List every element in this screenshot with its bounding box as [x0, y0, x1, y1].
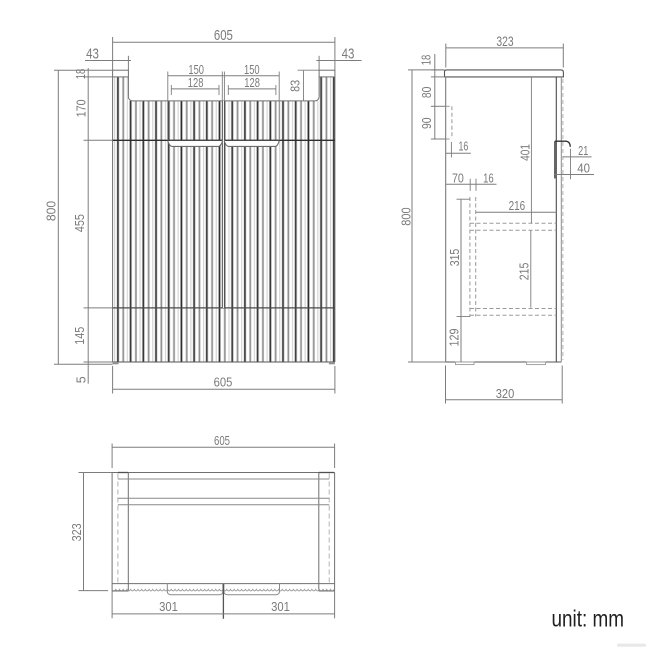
svg-text:320: 320 — [496, 386, 515, 401]
svg-text:128: 128 — [188, 76, 204, 90]
svg-text:455: 455 — [73, 214, 87, 232]
svg-text:21: 21 — [578, 144, 588, 158]
svg-text:40: 40 — [577, 162, 590, 176]
svg-text:150: 150 — [244, 63, 260, 77]
svg-text:216: 216 — [509, 199, 526, 213]
svg-text:323: 323 — [69, 523, 84, 541]
svg-text:605: 605 — [214, 374, 233, 389]
svg-text:83: 83 — [289, 80, 303, 92]
svg-text:43: 43 — [342, 46, 355, 63]
svg-text:401: 401 — [518, 144, 532, 161]
svg-text:145: 145 — [73, 327, 87, 345]
svg-text:323: 323 — [496, 33, 513, 49]
svg-text:215: 215 — [517, 263, 531, 281]
svg-text:16: 16 — [483, 171, 494, 185]
svg-text:90: 90 — [420, 117, 434, 129]
svg-text:5: 5 — [74, 376, 88, 383]
svg-text:315: 315 — [448, 249, 462, 267]
svg-text:605: 605 — [214, 433, 230, 448]
svg-text:unit: mm: unit: mm — [552, 606, 625, 632]
svg-text:128: 128 — [244, 76, 260, 90]
svg-text:18: 18 — [420, 55, 434, 66]
svg-text:800: 800 — [44, 201, 59, 221]
svg-text:16: 16 — [459, 139, 469, 153]
svg-text:18: 18 — [74, 69, 88, 80]
svg-text:800: 800 — [399, 207, 414, 225]
svg-text:301: 301 — [159, 599, 178, 614]
svg-text:301: 301 — [271, 599, 290, 614]
svg-text:605: 605 — [214, 27, 233, 44]
svg-text:129: 129 — [448, 328, 462, 346]
svg-text:70: 70 — [452, 171, 464, 185]
svg-text:43: 43 — [86, 46, 99, 63]
svg-text:150: 150 — [188, 63, 204, 77]
svg-text:80: 80 — [420, 87, 434, 99]
svg-text:170: 170 — [74, 99, 88, 117]
